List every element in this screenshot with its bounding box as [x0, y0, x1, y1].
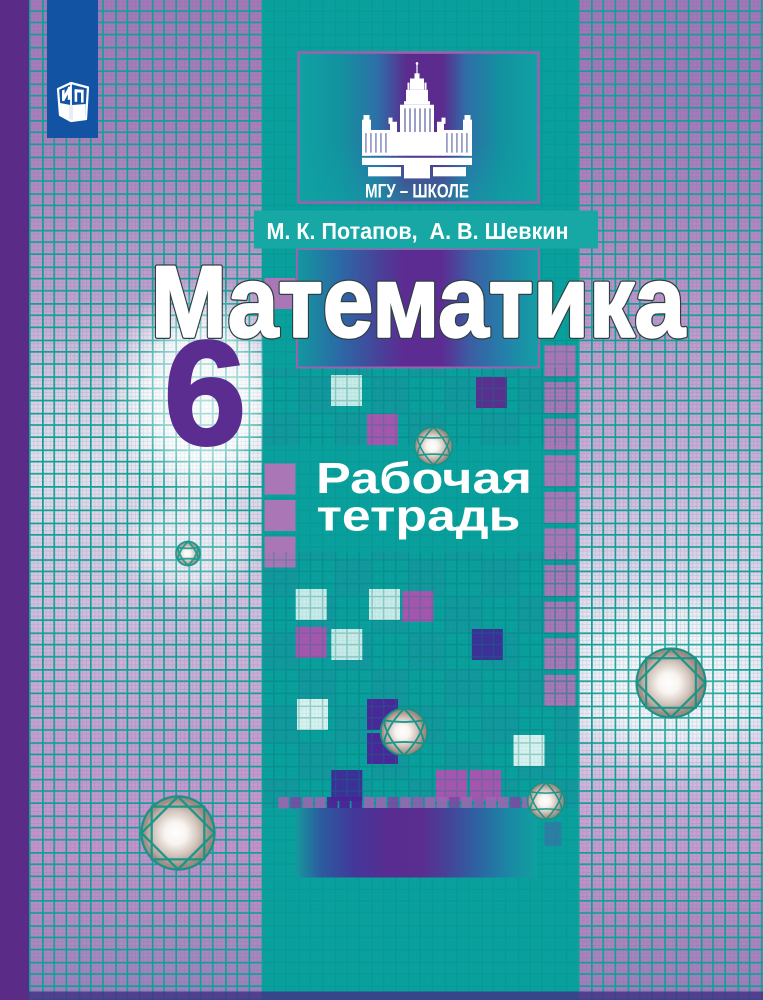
svg-text:6: 6 — [164, 311, 246, 476]
svg-text:тетрадь: тетрадь — [317, 492, 521, 541]
svg-text:МГУ – ШКОЛЕ: МГУ – ШКОЛЕ — [365, 181, 469, 203]
svg-text:М. К. Потапов, А. В. Шевкин: М. К. Потапов, А. В. Шевкин — [267, 218, 569, 244]
